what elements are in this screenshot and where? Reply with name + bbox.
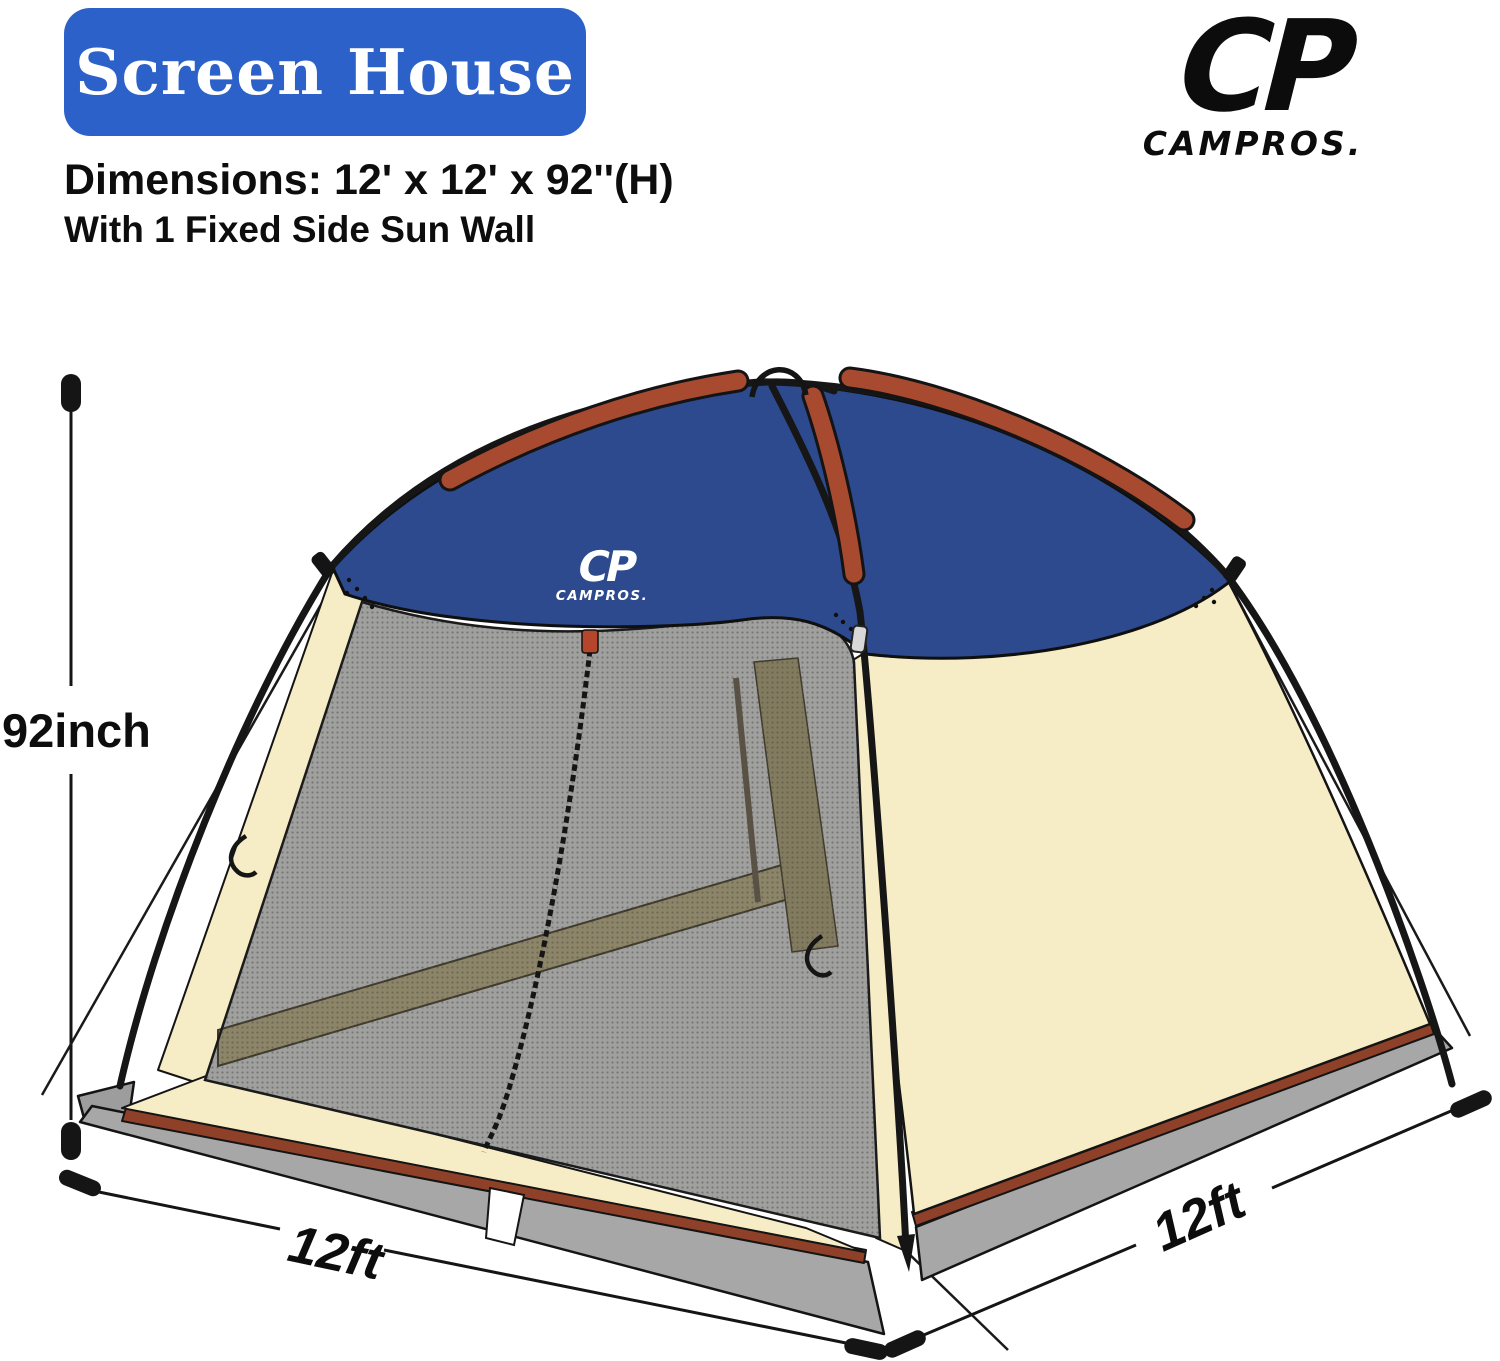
canopy-logo-brand: CAMPROS.: [556, 588, 648, 604]
sun-wall-right: [865, 577, 1430, 1214]
product-image: Screen House Dimensions: 12' x 12' x 92'…: [0, 0, 1500, 1361]
canopy: CP CAMPROS.: [333, 383, 1233, 658]
brand-mark: CP: [1161, 0, 1370, 141]
height-dimension-label: 92inch: [2, 704, 151, 757]
brand-name: CAMPROS.: [1143, 124, 1364, 163]
tent-illustration: CP CAMPROS. 92inch 12ft: [0, 0, 1500, 1361]
height-dim-cap-top: [61, 374, 81, 412]
front-width-dimension-label: 12ft: [283, 1214, 390, 1292]
height-dim-cap-bottom: [61, 1122, 81, 1160]
brand-logo: CP CAMPROS.: [1143, 0, 1370, 163]
zipper-slider: [582, 630, 598, 653]
pole-foot-center: [897, 1234, 915, 1272]
side-depth-dimension-label: 12ft: [1144, 1170, 1256, 1263]
buckle-center: [850, 625, 867, 653]
